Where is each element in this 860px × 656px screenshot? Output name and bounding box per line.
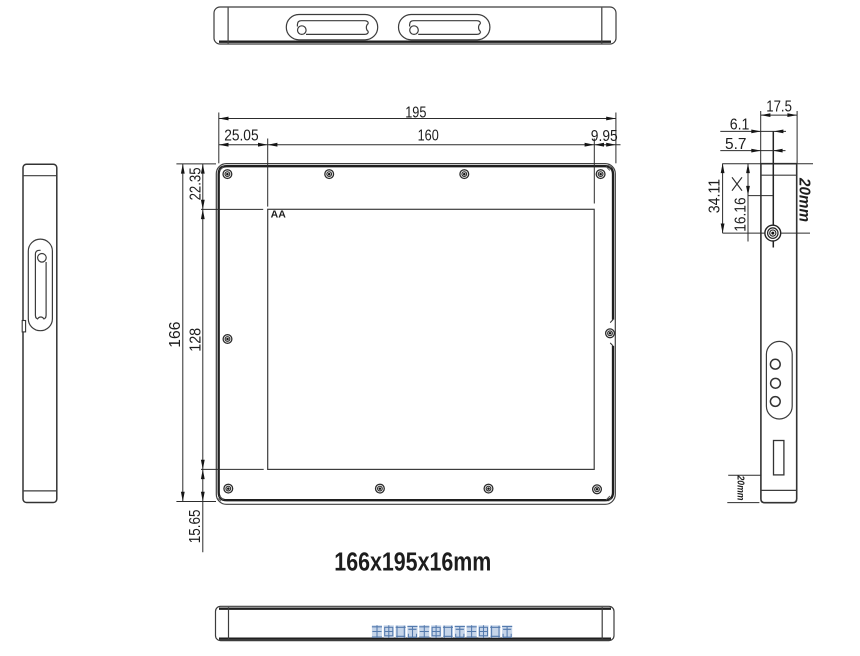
svg-text:9.95: 9.95 <box>591 128 618 145</box>
svg-text:160: 160 <box>418 128 439 145</box>
svg-text:25.05: 25.05 <box>224 128 258 145</box>
svg-text:AA: AA <box>271 209 287 221</box>
svg-text:166: 166 <box>167 322 184 348</box>
svg-text:128: 128 <box>187 328 204 352</box>
svg-text:22.35: 22.35 <box>187 167 204 200</box>
svg-text:20mm: 20mm <box>796 177 813 222</box>
svg-text:195: 195 <box>405 104 426 121</box>
svg-text:16.16: 16.16 <box>733 197 750 231</box>
svg-text:34.11: 34.11 <box>706 179 723 213</box>
svg-text:17.5: 17.5 <box>766 99 792 116</box>
svg-text:6.1: 6.1 <box>730 117 750 134</box>
svg-text:15.65: 15.65 <box>187 509 204 543</box>
svg-text:166x195x16mm: 166x195x16mm <box>334 549 491 577</box>
svg-text:5.7: 5.7 <box>725 136 747 153</box>
svg-text:20mm: 20mm <box>735 475 747 501</box>
